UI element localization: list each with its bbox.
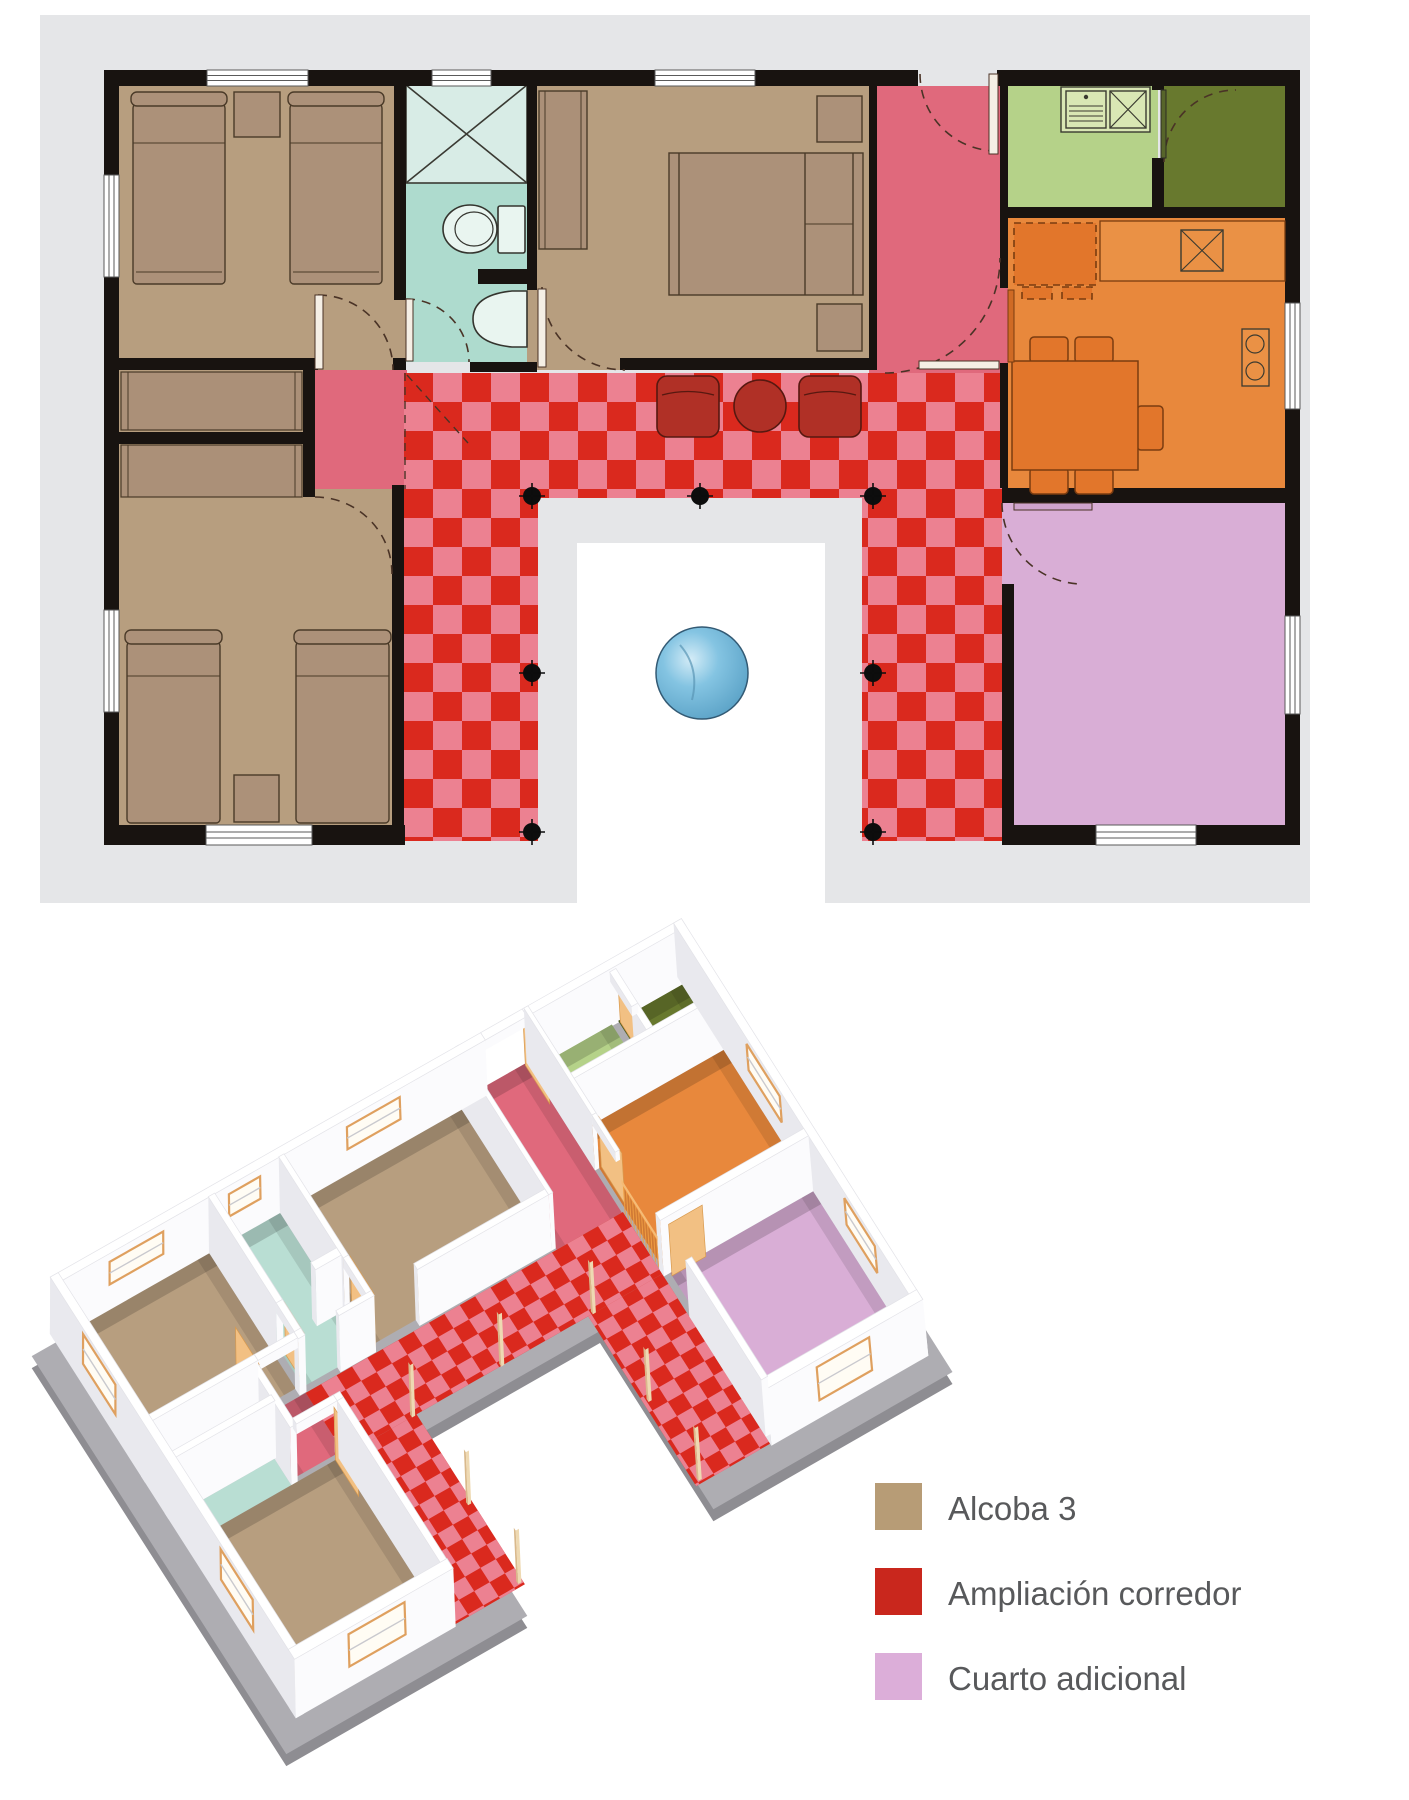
svg-text:Alcoba 3: Alcoba 3 <box>948 1490 1076 1527</box>
svg-text:Cuarto adicional: Cuarto adicional <box>948 1660 1186 1697</box>
svg-text:Ampliación corredor: Ampliación corredor <box>948 1575 1241 1612</box>
